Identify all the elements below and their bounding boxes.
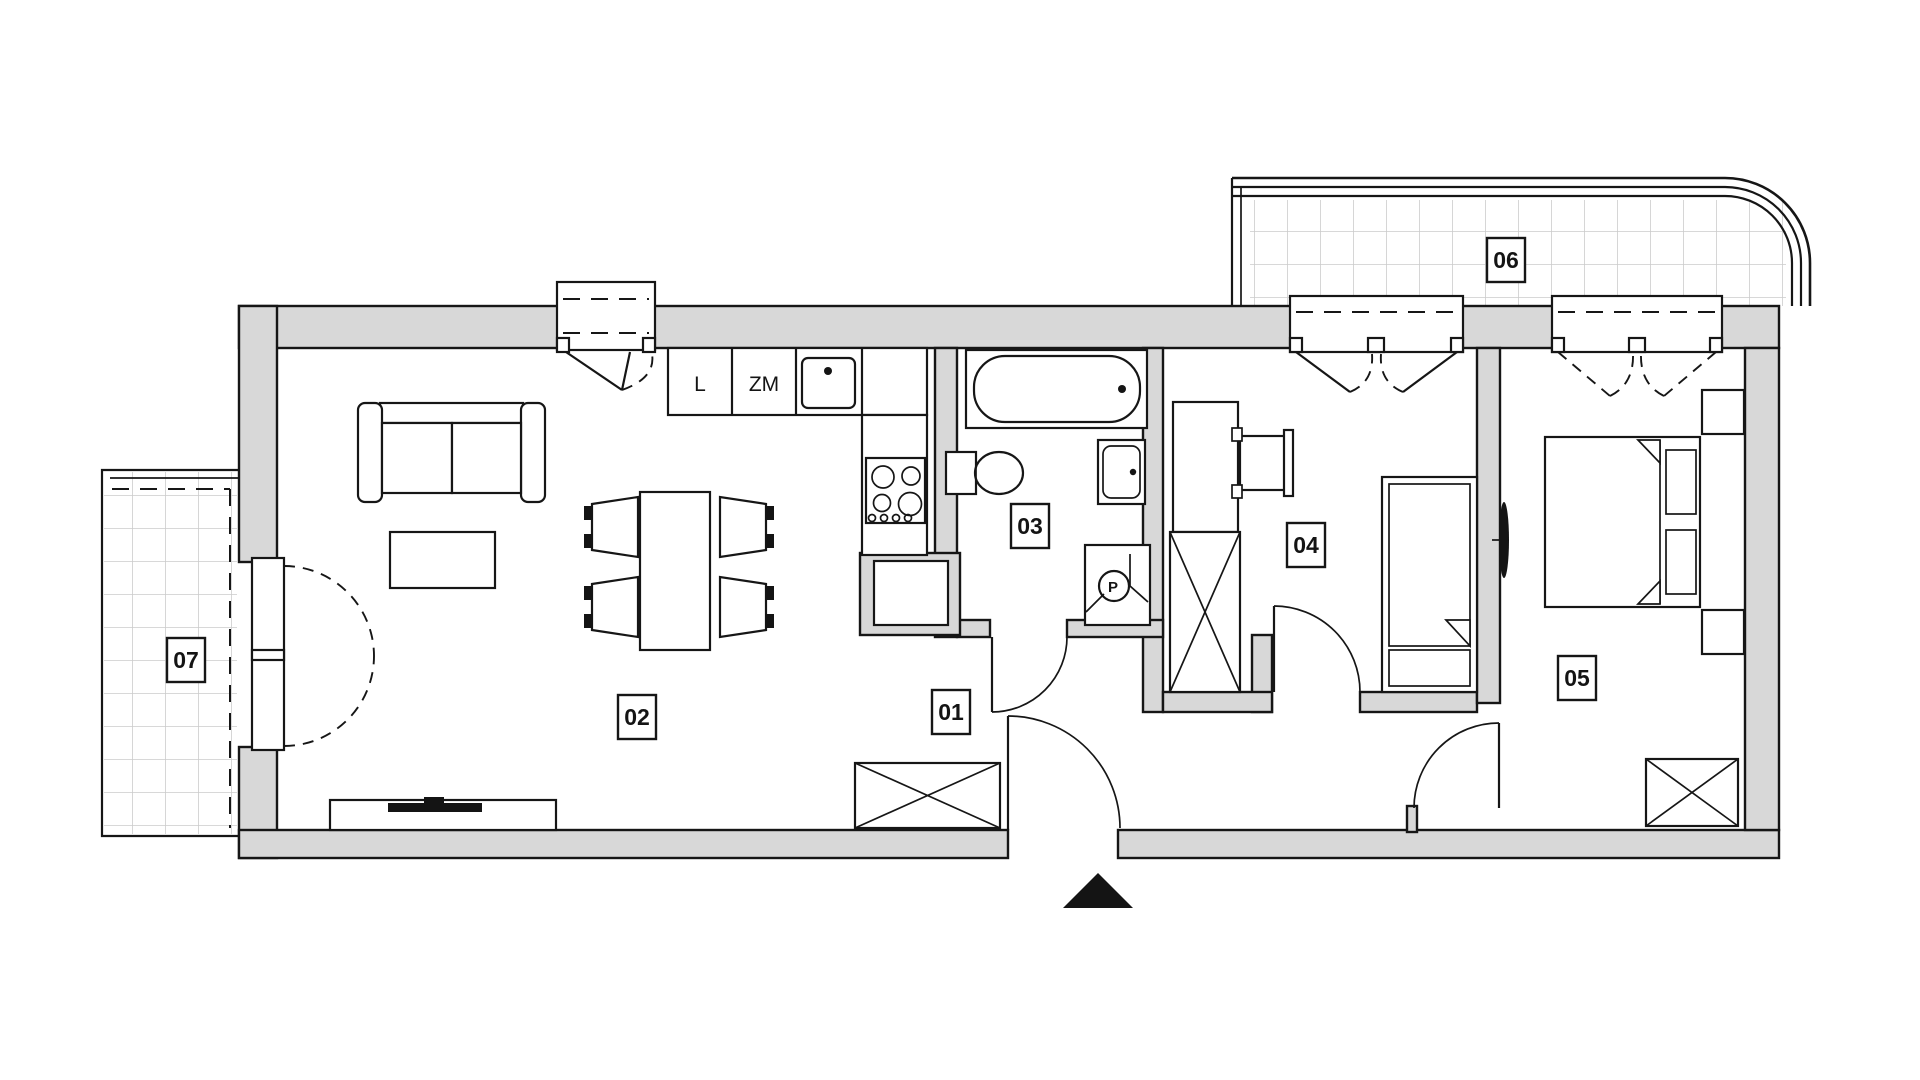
desk-chair xyxy=(1232,428,1293,498)
nightstand xyxy=(1702,390,1744,434)
wall-bedroom04-bedroom05 xyxy=(1477,348,1500,703)
door-bedroom04 xyxy=(1274,606,1360,692)
coffee-table xyxy=(390,532,495,588)
room-label-03: 03 xyxy=(1017,513,1043,539)
door-terrace-07 xyxy=(252,558,374,750)
room-label-01: 01 xyxy=(938,699,964,725)
window-living-room xyxy=(557,282,655,390)
door-bedroom05 xyxy=(1414,723,1499,808)
pillow xyxy=(1666,530,1696,594)
door-entrance xyxy=(1008,716,1120,830)
dining-table xyxy=(640,492,710,650)
washbasin xyxy=(1098,440,1145,504)
pillow xyxy=(1666,450,1696,514)
sofa xyxy=(358,403,545,502)
bathtub-faucet xyxy=(1118,385,1126,393)
bedroom-05 xyxy=(1492,390,1744,826)
wall-bedroom04-bottom-right xyxy=(1360,692,1477,712)
bathtub xyxy=(974,356,1140,422)
room-label-06: 06 xyxy=(1493,247,1519,273)
toilet xyxy=(946,452,1023,494)
kitchen-counter-top xyxy=(668,348,927,415)
window-bedroom05 xyxy=(1552,296,1722,396)
window-bedroom04 xyxy=(1290,296,1463,392)
wall-bottom-right xyxy=(1118,830,1779,858)
wall-bottom-left xyxy=(239,830,1008,858)
kitchen-sink xyxy=(802,358,855,408)
room-label-07: 07 xyxy=(173,647,199,673)
wall-bathroom-bottom-left xyxy=(957,620,990,637)
dining-chair xyxy=(720,497,766,557)
dining-set xyxy=(584,492,774,650)
door-leaf-bedroom04-window xyxy=(1296,352,1350,392)
wall-right xyxy=(1745,348,1779,830)
room-label-05: 05 xyxy=(1564,665,1590,691)
bathroom: P xyxy=(946,350,1150,625)
floor-plan-page: L ZM P xyxy=(0,0,1920,1080)
dishwasher-label: ZM xyxy=(749,373,779,396)
room-label-02: 02 xyxy=(624,704,650,730)
dining-chair xyxy=(720,577,766,637)
washing-machine-symbol: P xyxy=(1108,579,1118,596)
entrance-arrow xyxy=(1063,873,1133,908)
kitchen-sink-faucet xyxy=(824,367,832,375)
desk xyxy=(1173,402,1238,532)
dining-chair xyxy=(592,497,638,557)
door-bathroom xyxy=(992,637,1067,712)
duct-shaft-opening xyxy=(874,561,948,625)
washing-machine: P xyxy=(1085,545,1150,625)
fridge-label: L xyxy=(694,373,706,396)
stove xyxy=(866,458,925,523)
nightstand xyxy=(1702,610,1744,654)
dining-chair xyxy=(592,577,638,637)
wall-top xyxy=(239,306,1779,348)
hall-wardrobe xyxy=(855,763,1000,828)
living-room xyxy=(330,403,774,830)
tv-stand xyxy=(330,797,556,830)
wall-bedroom04-bottom-left xyxy=(1163,692,1272,712)
bed-single xyxy=(1382,477,1477,692)
wall-left-upper xyxy=(239,306,277,562)
wardrobe-bedroom04 xyxy=(1170,532,1240,692)
bed-double xyxy=(1545,437,1700,607)
wall-stub-bedroom05-door xyxy=(1407,806,1417,832)
room-label-04: 04 xyxy=(1293,532,1319,558)
floor-plan-drawing: L ZM P xyxy=(0,0,1920,1080)
door-leaf-living-window xyxy=(566,352,630,390)
wardrobe-bedroom05 xyxy=(1646,759,1738,826)
tv xyxy=(388,803,482,812)
